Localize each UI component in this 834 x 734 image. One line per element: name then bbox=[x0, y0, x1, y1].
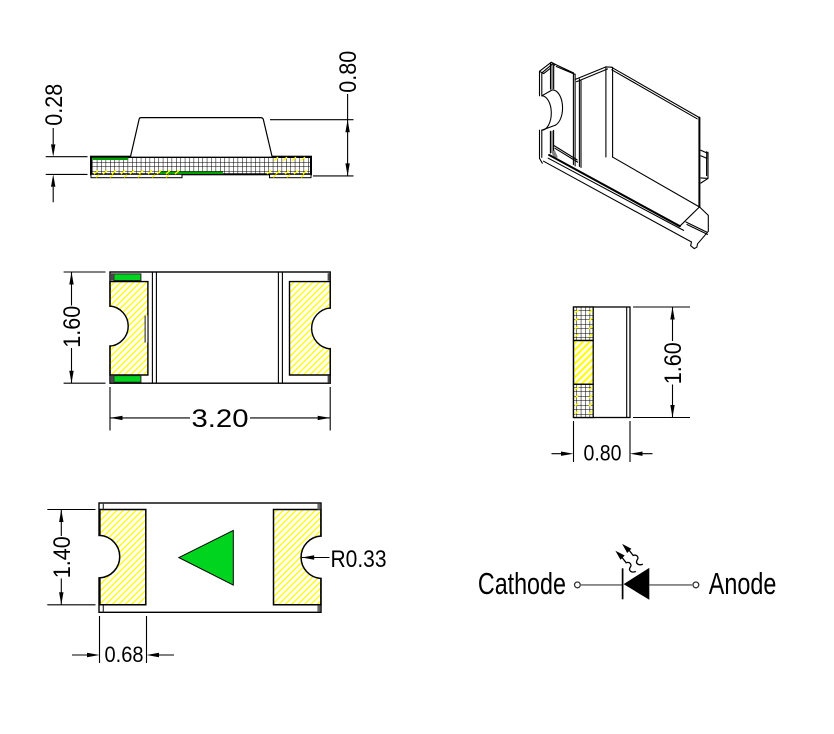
svg-text:0.68: 0.68 bbox=[105, 642, 144, 667]
svg-text:1.60: 1.60 bbox=[59, 306, 86, 348]
svg-text:0.80: 0.80 bbox=[584, 441, 622, 466]
svg-text:Anode: Anode bbox=[709, 566, 777, 601]
svg-text:1.40: 1.40 bbox=[49, 536, 76, 578]
svg-text:Cathode: Cathode bbox=[478, 566, 566, 601]
svg-text:3.20: 3.20 bbox=[192, 405, 249, 433]
svg-text:0.80: 0.80 bbox=[335, 51, 362, 93]
svg-text:1.60: 1.60 bbox=[660, 342, 687, 384]
svg-text:0.28: 0.28 bbox=[41, 84, 68, 126]
svg-text:R0.33: R0.33 bbox=[331, 546, 387, 573]
